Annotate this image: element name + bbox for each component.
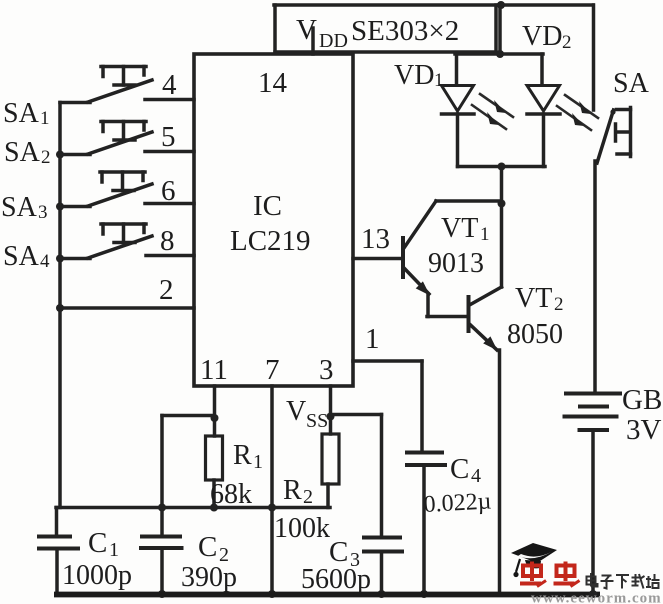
svg-text:3: 3 xyxy=(319,354,334,386)
svg-text:1: 1 xyxy=(253,451,263,473)
svg-text:C: C xyxy=(198,531,217,563)
svg-text:VD: VD xyxy=(394,60,434,91)
svg-text:SA: SA xyxy=(4,137,41,168)
svg-text:4: 4 xyxy=(162,69,177,101)
svg-text:390p: 390p xyxy=(181,562,237,593)
svg-text:2: 2 xyxy=(159,274,174,306)
svg-text:SE303×2: SE303×2 xyxy=(351,15,459,47)
svg-text:1: 1 xyxy=(109,539,119,561)
svg-text:VT: VT xyxy=(515,283,552,314)
svg-text:0.022µ: 0.022µ xyxy=(423,488,492,518)
svg-text:SA: SA xyxy=(3,241,40,272)
svg-text:SA: SA xyxy=(3,98,40,129)
svg-text:2: 2 xyxy=(562,32,572,53)
svg-text:SA: SA xyxy=(613,68,650,99)
svg-text:R: R xyxy=(283,475,302,506)
svg-text:1: 1 xyxy=(365,323,380,355)
svg-text:DD: DD xyxy=(319,30,348,52)
svg-text:7: 7 xyxy=(265,354,280,386)
svg-text:SA: SA xyxy=(1,192,38,223)
svg-text:www.eeworm.com: www.eeworm.com xyxy=(531,591,662,604)
svg-text:VT: VT xyxy=(441,213,478,244)
svg-text:3V: 3V xyxy=(626,414,662,446)
svg-text:1000p: 1000p xyxy=(62,560,132,591)
svg-text:C: C xyxy=(88,527,107,559)
svg-text:3: 3 xyxy=(38,202,48,223)
svg-text:2: 2 xyxy=(303,486,313,508)
svg-text:5600p: 5600p xyxy=(301,564,371,595)
svg-text:8050: 8050 xyxy=(507,319,563,350)
svg-text:9013: 9013 xyxy=(428,248,484,279)
svg-text:LC219: LC219 xyxy=(230,225,311,257)
svg-text:2: 2 xyxy=(554,294,564,315)
svg-text:V: V xyxy=(286,396,306,427)
svg-text:1: 1 xyxy=(480,224,490,245)
svg-text:R: R xyxy=(233,440,252,471)
svg-text:8: 8 xyxy=(160,225,175,257)
svg-text:SS: SS xyxy=(306,410,328,432)
svg-text:VD: VD xyxy=(522,21,562,52)
svg-text:13: 13 xyxy=(361,223,390,255)
svg-text:GB: GB xyxy=(622,384,662,416)
svg-text:1: 1 xyxy=(40,108,50,129)
svg-text:5: 5 xyxy=(161,121,176,153)
svg-text:100k: 100k xyxy=(274,513,330,544)
svg-text:C: C xyxy=(450,453,469,485)
svg-text:14: 14 xyxy=(258,67,288,99)
svg-text:6: 6 xyxy=(161,175,176,207)
svg-text:1: 1 xyxy=(434,70,444,91)
svg-text:IC: IC xyxy=(253,190,282,222)
svg-text:2: 2 xyxy=(41,147,51,168)
svg-text:4: 4 xyxy=(471,465,481,487)
svg-text:4: 4 xyxy=(40,251,50,272)
svg-text:11: 11 xyxy=(200,354,228,386)
